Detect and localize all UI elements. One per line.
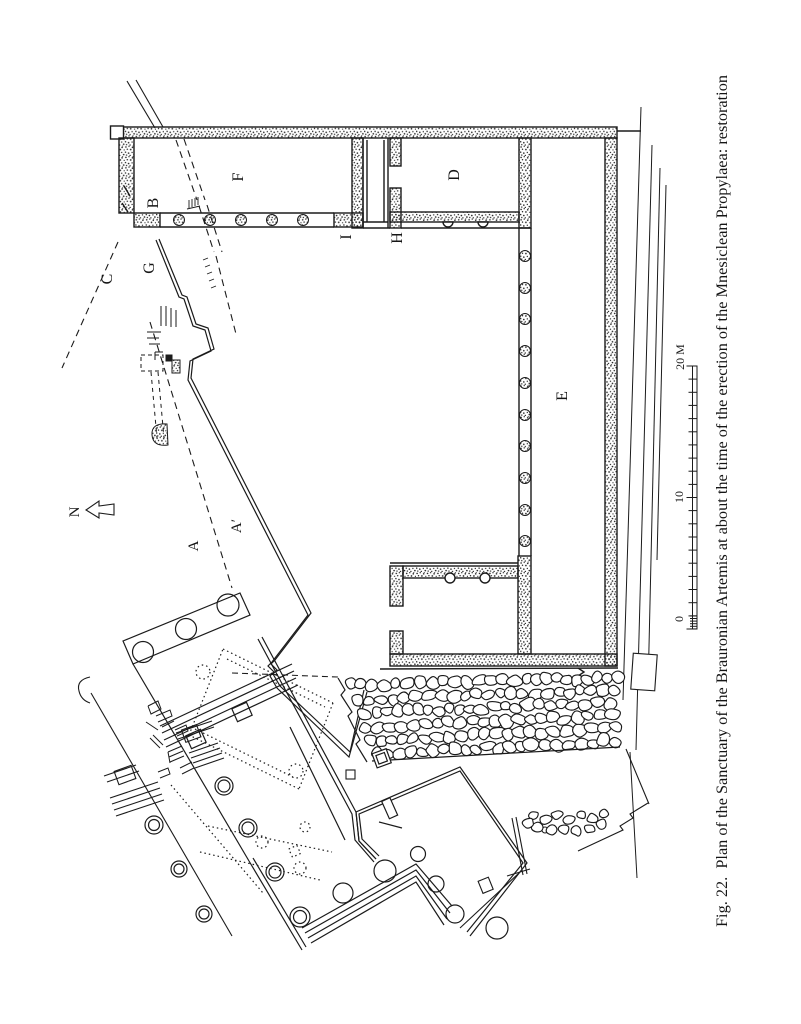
svg-text:H: H: [389, 232, 406, 244]
svg-text:20 M: 20 M: [673, 344, 687, 370]
svg-text:A: A: [186, 540, 202, 551]
svg-text:N: N: [67, 506, 83, 517]
svg-text:C: C: [99, 274, 116, 285]
svg-text:10: 10: [672, 491, 686, 503]
svg-text:G: G: [141, 262, 158, 274]
svg-text:I: I: [338, 234, 355, 239]
svg-text:F: F: [230, 172, 247, 181]
svg-text:0: 0: [672, 616, 686, 622]
svg-text:B: B: [145, 198, 162, 209]
svg-text:Fig. 22. Plan of the Sanctuar: Fig. 22. Plan of the Sanctuary of the Br…: [714, 75, 731, 927]
svg-text:D: D: [446, 169, 463, 181]
svg-text:Aʹ: Aʹ: [229, 519, 245, 533]
svg-text:E: E: [554, 391, 571, 401]
